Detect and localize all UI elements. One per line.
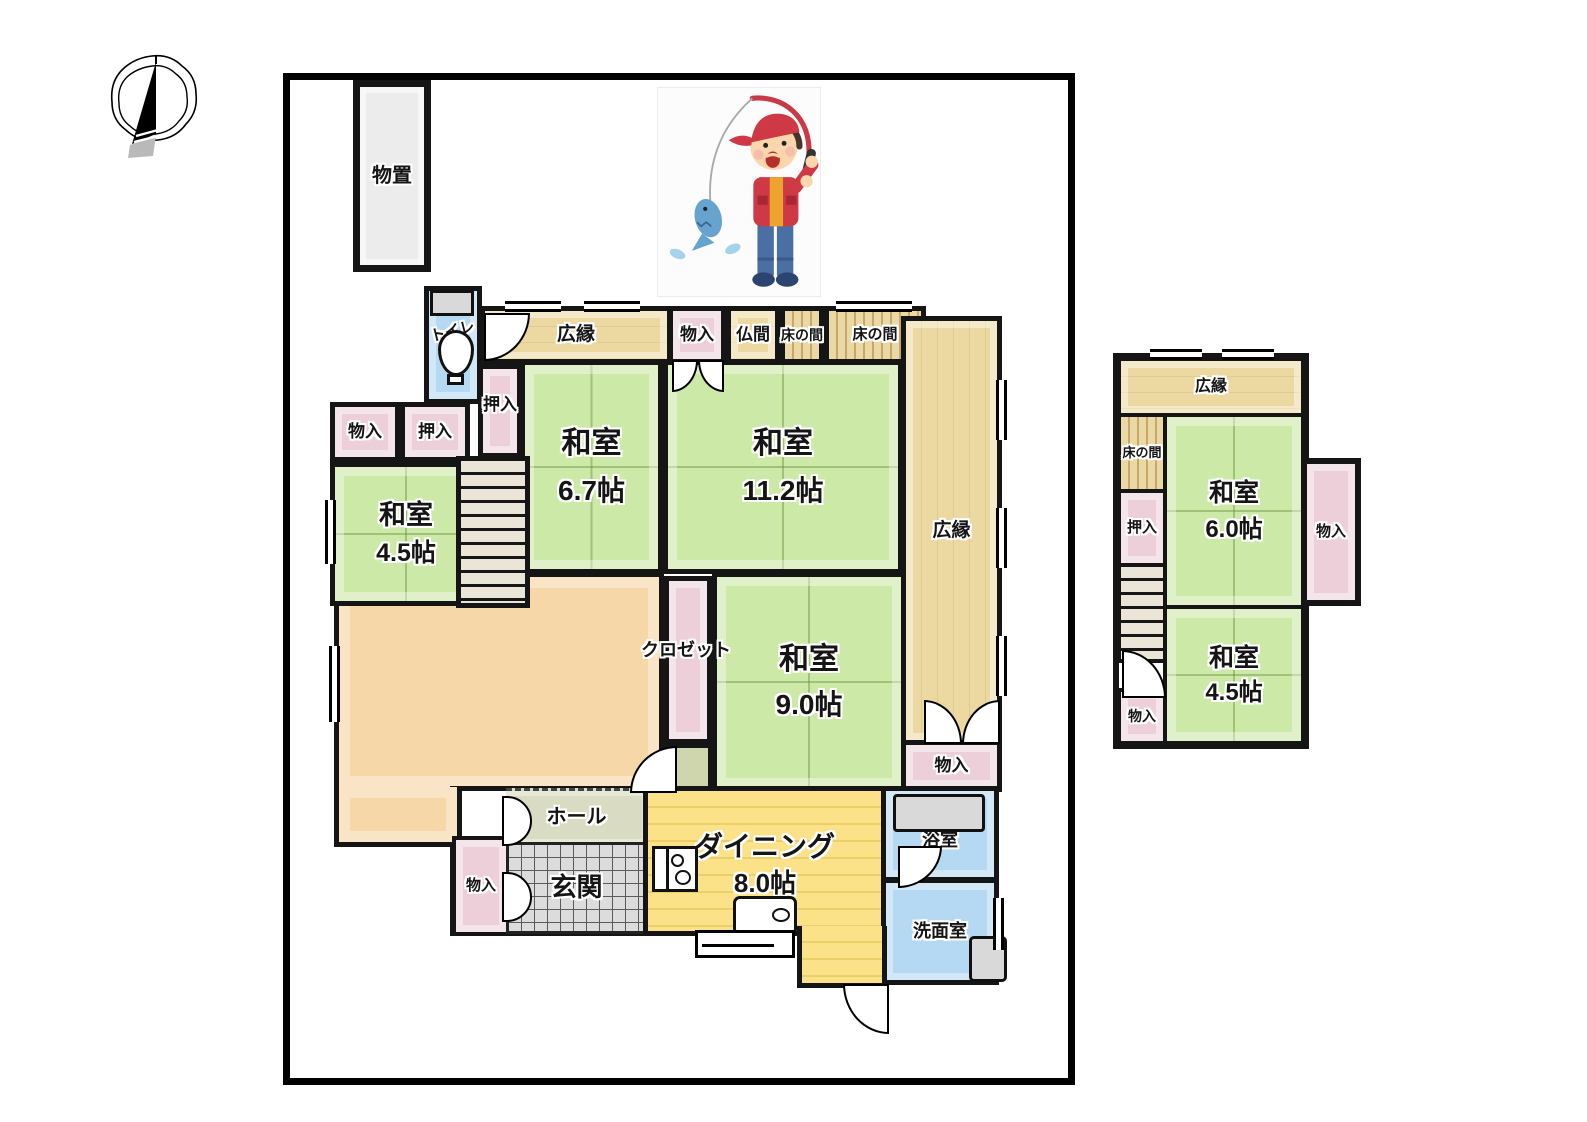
stove-icon [652, 846, 698, 892]
room-label: ダイニング [695, 831, 835, 863]
room-label: 和室 [562, 427, 622, 462]
room-washitsu-11-2: 和室 11.2帖 [663, 360, 903, 574]
window [329, 646, 340, 722]
room-living-extension [334, 787, 462, 847]
room-label: 物入 [466, 877, 496, 894]
room-dining-extension [797, 926, 887, 988]
f2-staircase [1117, 563, 1167, 663]
room-storage-shed: 物置 [353, 80, 431, 272]
room-label: 和室 [779, 643, 839, 678]
room-oshiire-center: 押入 [478, 364, 522, 458]
window [1222, 349, 1274, 360]
f2-room-oshiire: 押入 [1117, 489, 1167, 567]
f2-room-washitsu-4-5: 和室 4.5帖 [1163, 605, 1305, 745]
window [325, 500, 336, 564]
room-size: 8.0帖 [734, 869, 796, 899]
room-label: 和室 [1209, 479, 1259, 508]
room-label: 仏間 [736, 325, 770, 345]
room-label: 床の間 [781, 327, 823, 343]
room-storage-veranda: 物入 [901, 740, 1002, 792]
north-compass-icon [92, 50, 212, 170]
room-label: 和室 [379, 500, 433, 531]
room-label: 物入 [1128, 708, 1156, 724]
bathtub-icon [893, 794, 985, 832]
room-label: 洗面室 [913, 921, 967, 942]
room-veranda-right: 広縁 [901, 316, 1002, 745]
room-storage-left: 物入 [330, 402, 400, 462]
room-label: 和室 [1209, 644, 1259, 673]
window [836, 301, 912, 312]
room-label: 広縁 [557, 324, 595, 346]
room-label: 押入 [483, 395, 517, 415]
room-tokonoma-small: 床の間 [780, 306, 824, 364]
room-label: 物置 [372, 165, 412, 188]
room-label: 物入 [935, 756, 969, 776]
f2-room-veranda: 広縁 [1117, 357, 1305, 417]
room-label: 物入 [348, 422, 382, 442]
sliding-door [695, 930, 795, 958]
room-label: ホール [547, 806, 607, 829]
fishing-boy-illustration [657, 87, 821, 297]
staircase-main [456, 456, 530, 608]
room-label: 広縁 [932, 520, 970, 542]
room-storage-top: 物入 [668, 306, 726, 364]
f2-room-tokonoma: 床の間 [1117, 413, 1167, 493]
closet-label: クロゼット [616, 640, 756, 661]
room-label: 物入 [680, 325, 714, 345]
window [993, 898, 1004, 950]
room-label: 玄関 [550, 873, 602, 903]
room-size: 4.5帖 [376, 539, 436, 568]
room-washitsu-9-0: 和室 9.0帖 [712, 572, 906, 792]
floor-plan-canvas: 物置 [0, 0, 1587, 1122]
window [1150, 349, 1202, 360]
room-size: 4.5帖 [1205, 679, 1262, 707]
room-label: 押入 [1127, 519, 1157, 536]
f2-room-storage-right: 物入 [1301, 458, 1361, 606]
room-size: 6.7帖 [558, 475, 625, 507]
f2-room-washitsu-6-0: 和室 6.0帖 [1163, 413, 1305, 609]
room-label: 物入 [1316, 523, 1346, 540]
room-label: 広縁 [1195, 378, 1227, 396]
window [996, 508, 1007, 568]
window [505, 301, 561, 312]
room-label: 床の間 [852, 326, 897, 343]
room-washitsu-6-7: 和室 6.7帖 [520, 360, 663, 574]
room-oshiire-left: 押入 [400, 402, 470, 462]
room-size: 11.2帖 [743, 475, 824, 507]
window [996, 380, 1007, 440]
toilet-icon [430, 290, 474, 316]
toilet-icon [447, 374, 464, 385]
room-size: 9.0帖 [776, 689, 843, 721]
window [584, 301, 640, 312]
room-label: 押入 [418, 422, 452, 442]
window [996, 636, 1007, 696]
room-size: 6.0帖 [1205, 516, 1262, 544]
room-butsuma: 仏間 [726, 306, 780, 364]
room-label: 床の間 [1122, 446, 1161, 461]
room-label: 和室 [753, 427, 813, 462]
